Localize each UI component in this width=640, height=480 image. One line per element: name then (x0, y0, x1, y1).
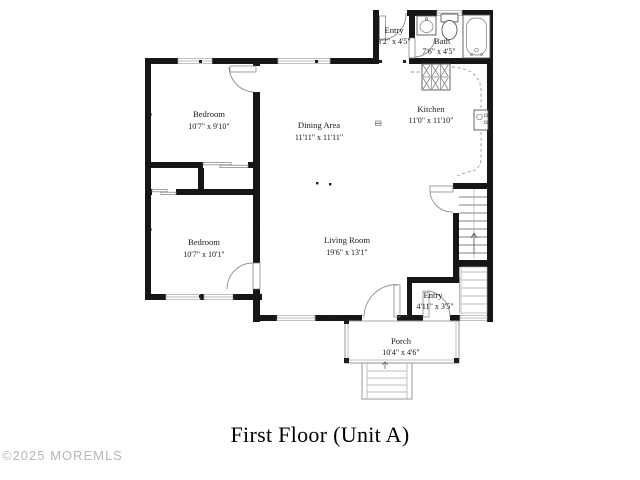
room-dims-bedroom-2: 10'7" x 10'1" (183, 250, 224, 259)
porch-steps-icon (362, 362, 412, 399)
staircase-icon (459, 189, 487, 313)
room-label-entry-bottom: Entry (423, 290, 443, 300)
porch-post (344, 319, 349, 324)
copyright-watermark: ©2025 MOREMLS (2, 448, 123, 463)
stove-icon (422, 64, 450, 90)
door-bedroom-1 (229, 66, 261, 92)
room-label-bedroom-1: Bedroom (193, 109, 225, 119)
bathtub-icon (463, 15, 490, 58)
door-bedroom-2 (227, 263, 261, 289)
room-label-porch: Porch (391, 336, 412, 346)
closet-slider-top (203, 162, 248, 168)
porch-post (344, 358, 349, 363)
door-front (362, 285, 400, 322)
room-label-living-room: Living Room (324, 235, 370, 245)
kitchen-sink-icon (474, 110, 488, 130)
window (277, 315, 315, 321)
room-label-kitchen: Kitchen (417, 104, 445, 114)
room-dims-porch: 10'4" x 4'6" (382, 348, 419, 357)
room-dims-entry-top: 3'2" x 4'5" (377, 37, 410, 46)
room-label-bath: Bath (434, 36, 451, 46)
room-dims-living-room: 19'6" x 13'1" (326, 248, 367, 257)
window (278, 58, 330, 64)
room-dims-bedroom-1: 10'7" x 9'10" (188, 122, 229, 131)
room-dims-dining-area: 11'11" x 11'11" (295, 133, 343, 142)
room-label-entry-top: Entry (384, 25, 404, 35)
closet-slider-bottom (152, 189, 176, 195)
window (166, 294, 200, 300)
bath-sink-icon (417, 16, 436, 35)
door-stairs (430, 186, 459, 213)
stairs-up-arrow-icon (471, 233, 477, 254)
window (204, 294, 233, 300)
window (460, 315, 487, 321)
stairs-down-icon (460, 267, 488, 313)
floor-plan-page: Bedroom 10'7" x 9'10" Dining Area 11'11"… (0, 0, 640, 480)
room-label-bedroom-2: Bedroom (188, 237, 220, 247)
room-dims-entry-bottom: 4'11" x 3'5" (416, 302, 453, 311)
porch-post (454, 358, 459, 363)
porch-outline (344, 319, 459, 399)
window (178, 58, 212, 64)
room-dims-bath: 7'6" x 4'5" (422, 47, 455, 56)
plan-title: First Floor (Unit A) (0, 422, 640, 448)
room-dims-kitchen: 11'0" x 11'10" (409, 116, 454, 125)
walls (145, 10, 493, 322)
floor-plan-drawing: Bedroom 10'7" x 9'10" Dining Area 11'11"… (0, 0, 640, 480)
floor-register-icon (376, 121, 382, 126)
room-label-dining-area: Dining Area (298, 120, 340, 130)
